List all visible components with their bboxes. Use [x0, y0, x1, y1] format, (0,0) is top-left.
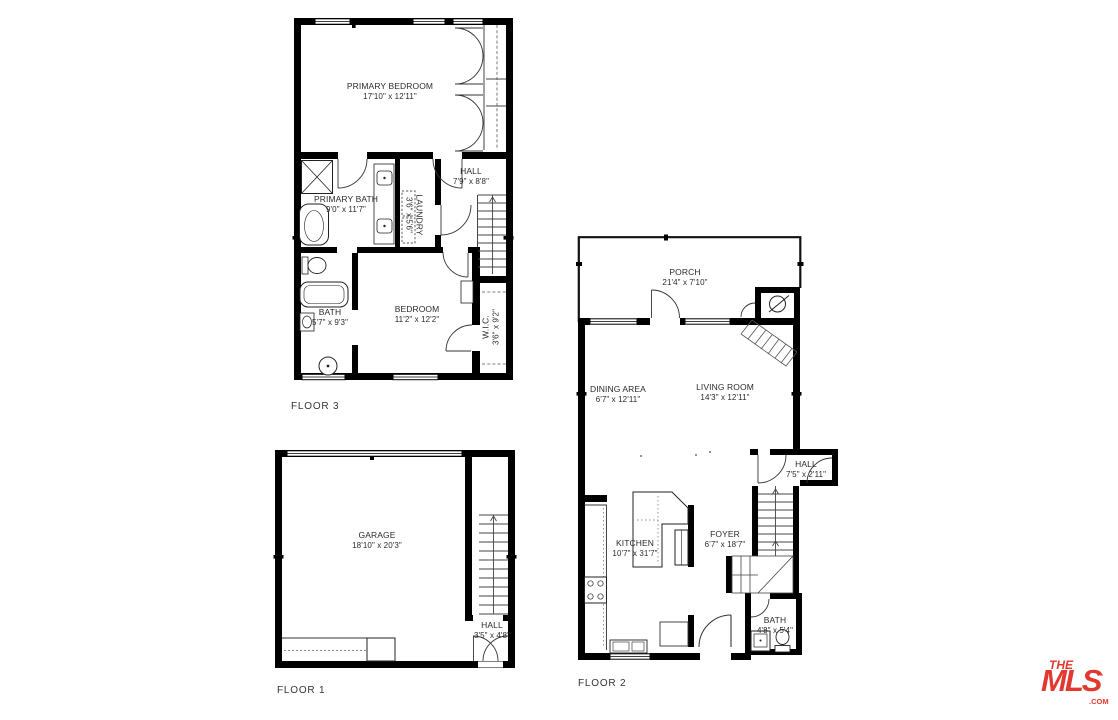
floor1-hall-dims: 3'5" x 4'8" [474, 631, 510, 642]
room-label-floor2-bath: BATH 4'8" x 5'4" [757, 615, 793, 636]
room-label-primary-bath: PRIMARY BATH 9'0" x 11'7" [314, 194, 378, 215]
kitchen-name: KITCHEN [612, 538, 657, 549]
laundry-dims: 3'6" x 5'6" [404, 194, 415, 235]
logo-trademark: ™ [1097, 674, 1103, 680]
floor2-bath-name: BATH [757, 615, 793, 626]
floor2-label: FLOOR 2 [578, 678, 626, 689]
floor3-label: FLOOR 3 [291, 401, 339, 412]
floor1-label: FLOOR 1 [277, 685, 325, 696]
floor3-bath-dims: 5'7" x 9'3" [312, 318, 348, 329]
foyer-dims: 6'7" x 18'7" [705, 540, 746, 551]
bedroom-dims: 11'2" x 12'2" [395, 315, 440, 326]
floor3-bath-name: BATH [312, 307, 348, 318]
garage-name: GARAGE [352, 530, 402, 541]
living-room-dims: 14'3" x 12'11" [696, 393, 754, 404]
room-label-floor1-hall: HALL 3'5" x 4'8" [474, 620, 510, 641]
logo-mls-text: MLS [1041, 663, 1100, 699]
garage-dims: 18'10" x 20'3" [352, 541, 402, 552]
room-label-living-room: LIVING ROOM 14'3" x 12'11" [696, 382, 754, 403]
wic-dims: 3'6" x 9'2" [491, 309, 502, 345]
room-label-floor3-hall: HALL 7'9" x 8'8" [453, 166, 489, 187]
room-label-laundry: LAUNDRY 3'6" x 5'6" [404, 194, 425, 235]
primary-bath-dims: 9'0" x 11'7" [314, 205, 378, 216]
room-label-garage: GARAGE 18'10" x 20'3" [352, 530, 402, 551]
floorplan-drawing [0, 0, 1118, 720]
laundry-name: LAUNDRY [414, 194, 425, 235]
kitchen-fixtures [585, 492, 689, 653]
room-label-wic: W.I.C. 3'6" x 9'2" [481, 309, 502, 345]
wic-name: W.I.C. [481, 309, 492, 345]
floor2-windows [590, 319, 730, 659]
floor2-bath-dims: 4'8" x 5'4" [757, 626, 793, 637]
floor2-diagonal-stairs [741, 320, 797, 366]
porch-name: PORCH [662, 267, 707, 278]
primary-bedroom-name: PRIMARY BEDROOM [347, 81, 433, 92]
floor3-hall-dims: 7'9" x 8'8" [453, 177, 489, 188]
dining-area-dims: 6'7" x 12'11" [590, 395, 646, 406]
primary-bedroom-dims: 17'10" x 12'11" [347, 92, 433, 103]
floor1-stairs [479, 515, 508, 614]
kitchen-dims: 10'7" x 31'7" [612, 549, 657, 560]
room-label-bedroom: BEDROOM 11'2" x 12'2" [395, 304, 440, 325]
room-label-floor3-bath: BATH 5'7" x 9'3" [312, 307, 348, 328]
room-label-dining-area: DINING AREA 6'7" x 12'11" [590, 384, 646, 405]
room-label-floor2-hall: HALL 7'5" x 2'11" [786, 459, 826, 480]
room-label-porch: PORCH 21'4" x 7'10" [662, 267, 707, 288]
room-label-foyer: FOYER 6'7" x 18'7" [705, 529, 746, 550]
themls-logo: THE MLS ™ .COM [1040, 656, 1112, 712]
garage-workbench [282, 638, 367, 661]
floor3-stairs [478, 195, 506, 274]
floorplan-page: PRIMARY BEDROOM 17'10" x 12'11" HALL 7'9… [0, 0, 1118, 720]
closet-lines [478, 25, 507, 247]
floor2-hall-dims: 7'5" x 2'11" [786, 470, 826, 481]
floor1-hall-name: HALL [474, 620, 510, 631]
floor3-hall-name: HALL [453, 166, 489, 177]
dining-area-name: DINING AREA [590, 384, 646, 395]
foyer-name: FOYER [705, 529, 746, 540]
primary-bath-name: PRIMARY BATH [314, 194, 378, 205]
room-label-primary-bedroom: PRIMARY BEDROOM 17'10" x 12'11" [347, 81, 433, 102]
bedroom-name: BEDROOM [395, 304, 440, 315]
logo-com-text: .COM [1089, 697, 1109, 706]
floor2-plan [576, 235, 838, 661]
floor2-hall-name: HALL [786, 459, 826, 470]
room-label-kitchen: KITCHEN 10'7" x 31'7" [612, 538, 657, 559]
porch-dims: 21'4" x 7'10" [662, 278, 707, 289]
living-room-name: LIVING ROOM [696, 382, 754, 393]
